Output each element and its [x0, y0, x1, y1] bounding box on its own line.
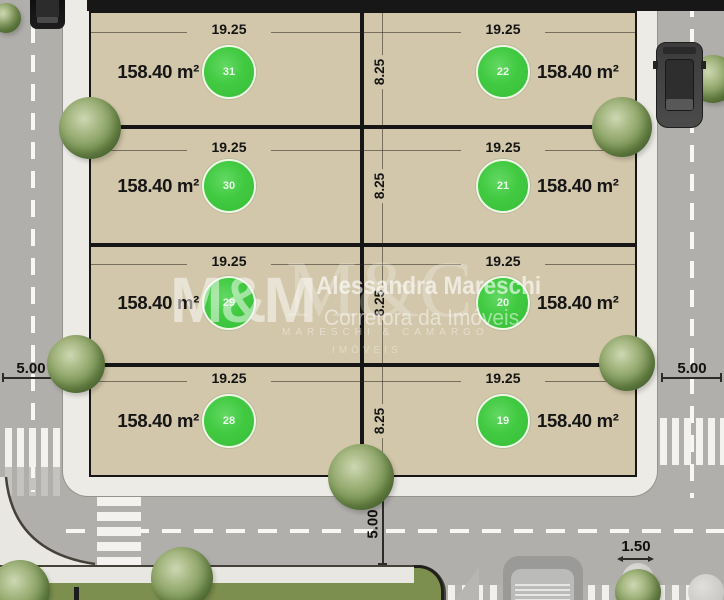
sidewalk-dim-line	[622, 558, 649, 560]
lot-number: 21	[497, 180, 509, 192]
shrub	[688, 574, 724, 600]
width-dimension-line	[91, 32, 635, 33]
dim-arrow	[648, 556, 654, 562]
lot-width-label: 19.25	[461, 21, 545, 37]
sign-post	[74, 587, 79, 600]
lot-width-label: 19.25	[461, 139, 545, 155]
tree	[151, 547, 213, 600]
lot-depth-label: 8.25	[372, 55, 388, 89]
bottom-block-grass	[0, 583, 442, 600]
car-top-view	[30, 0, 65, 29]
bottom-right-sidewalk-pavers	[448, 585, 724, 600]
lot-depth-label: 8.25	[372, 286, 388, 320]
crosswalk-right	[660, 418, 724, 465]
lot-number-marker: 20	[476, 276, 530, 330]
lot-number: 20	[497, 297, 509, 309]
lot-width-label: 19.25	[187, 253, 271, 269]
car-hood	[663, 47, 696, 54]
lot-number-marker: 22	[476, 45, 530, 99]
right-street-dim-line	[661, 377, 722, 379]
lot-depth-label: 8.25	[372, 404, 388, 438]
tree	[599, 335, 655, 391]
right-street-width: 5.00	[662, 360, 722, 377]
lot-area-label: 158.40 m²	[537, 175, 637, 197]
lot-number-marker: 29	[202, 276, 256, 330]
top-road-edge	[87, 0, 724, 11]
tree	[328, 444, 394, 510]
lots-area: 19.25 19.25 19.25 19.25 19.25 19.25 19.2…	[89, 11, 637, 477]
tree	[0, 3, 21, 33]
crosswalk-left	[5, 428, 62, 467]
lot-number: 31	[223, 66, 235, 78]
lot-number-marker: 30	[202, 159, 256, 213]
lot-number: 30	[223, 180, 235, 192]
lot-area-label: 158.40 m²	[537, 61, 637, 83]
left-road-centerline	[31, 26, 35, 492]
crosswalk-left-worn	[5, 466, 62, 496]
row-divider	[91, 243, 635, 247]
row-divider	[91, 125, 635, 129]
lot-number-marker: 21	[476, 159, 530, 213]
lot-width-label: 19.25	[461, 253, 545, 269]
car-top-view	[656, 42, 703, 128]
lot-area-label: 158.40 m²	[537, 292, 637, 314]
width-dimension-line	[91, 264, 635, 265]
width-dimension-line	[91, 150, 635, 151]
building-roof-lines	[515, 584, 570, 600]
bottom-road-centerline	[66, 529, 724, 533]
lot-width-label: 19.25	[187, 139, 271, 155]
lot-area-label: 158.40 m²	[99, 292, 199, 314]
lot-number: 22	[497, 66, 509, 78]
width-dimension-line	[91, 381, 635, 382]
lot-depth-label: 8.25	[372, 169, 388, 203]
site-plan: 19.25 19.25 19.25 19.25 19.25 19.25 19.2…	[0, 0, 724, 600]
car-windshield	[666, 99, 693, 110]
lot-number: 19	[497, 415, 509, 427]
lot-number-marker: 19	[476, 394, 530, 448]
dim-arrow	[617, 556, 623, 562]
car-mirror	[701, 61, 706, 69]
lot-area-label: 158.40 m²	[537, 410, 637, 432]
bottom-block-corner	[414, 565, 444, 600]
car-windshield	[37, 17, 58, 23]
lot-width-label: 19.25	[187, 370, 271, 386]
tree	[59, 97, 121, 159]
lot-area-label: 158.40 m²	[99, 410, 199, 432]
lot-number-marker: 28	[202, 394, 256, 448]
lot-number: 28	[223, 415, 235, 427]
lot-width-label: 19.25	[187, 21, 271, 37]
tree	[592, 97, 652, 157]
lot-number-marker: 31	[202, 45, 256, 99]
crosswalk-bottom	[97, 497, 141, 566]
lot-number: 29	[223, 297, 235, 309]
sidewalk-width: 1.50	[606, 538, 666, 555]
lot-area-label: 158.40 m²	[99, 61, 199, 83]
tree	[47, 335, 105, 393]
lot-area-label: 158.40 m²	[99, 175, 199, 197]
row-divider	[91, 363, 635, 367]
car-mirror	[653, 61, 658, 69]
dim-tick	[378, 563, 387, 565]
lot-width-label: 19.25	[461, 370, 545, 386]
